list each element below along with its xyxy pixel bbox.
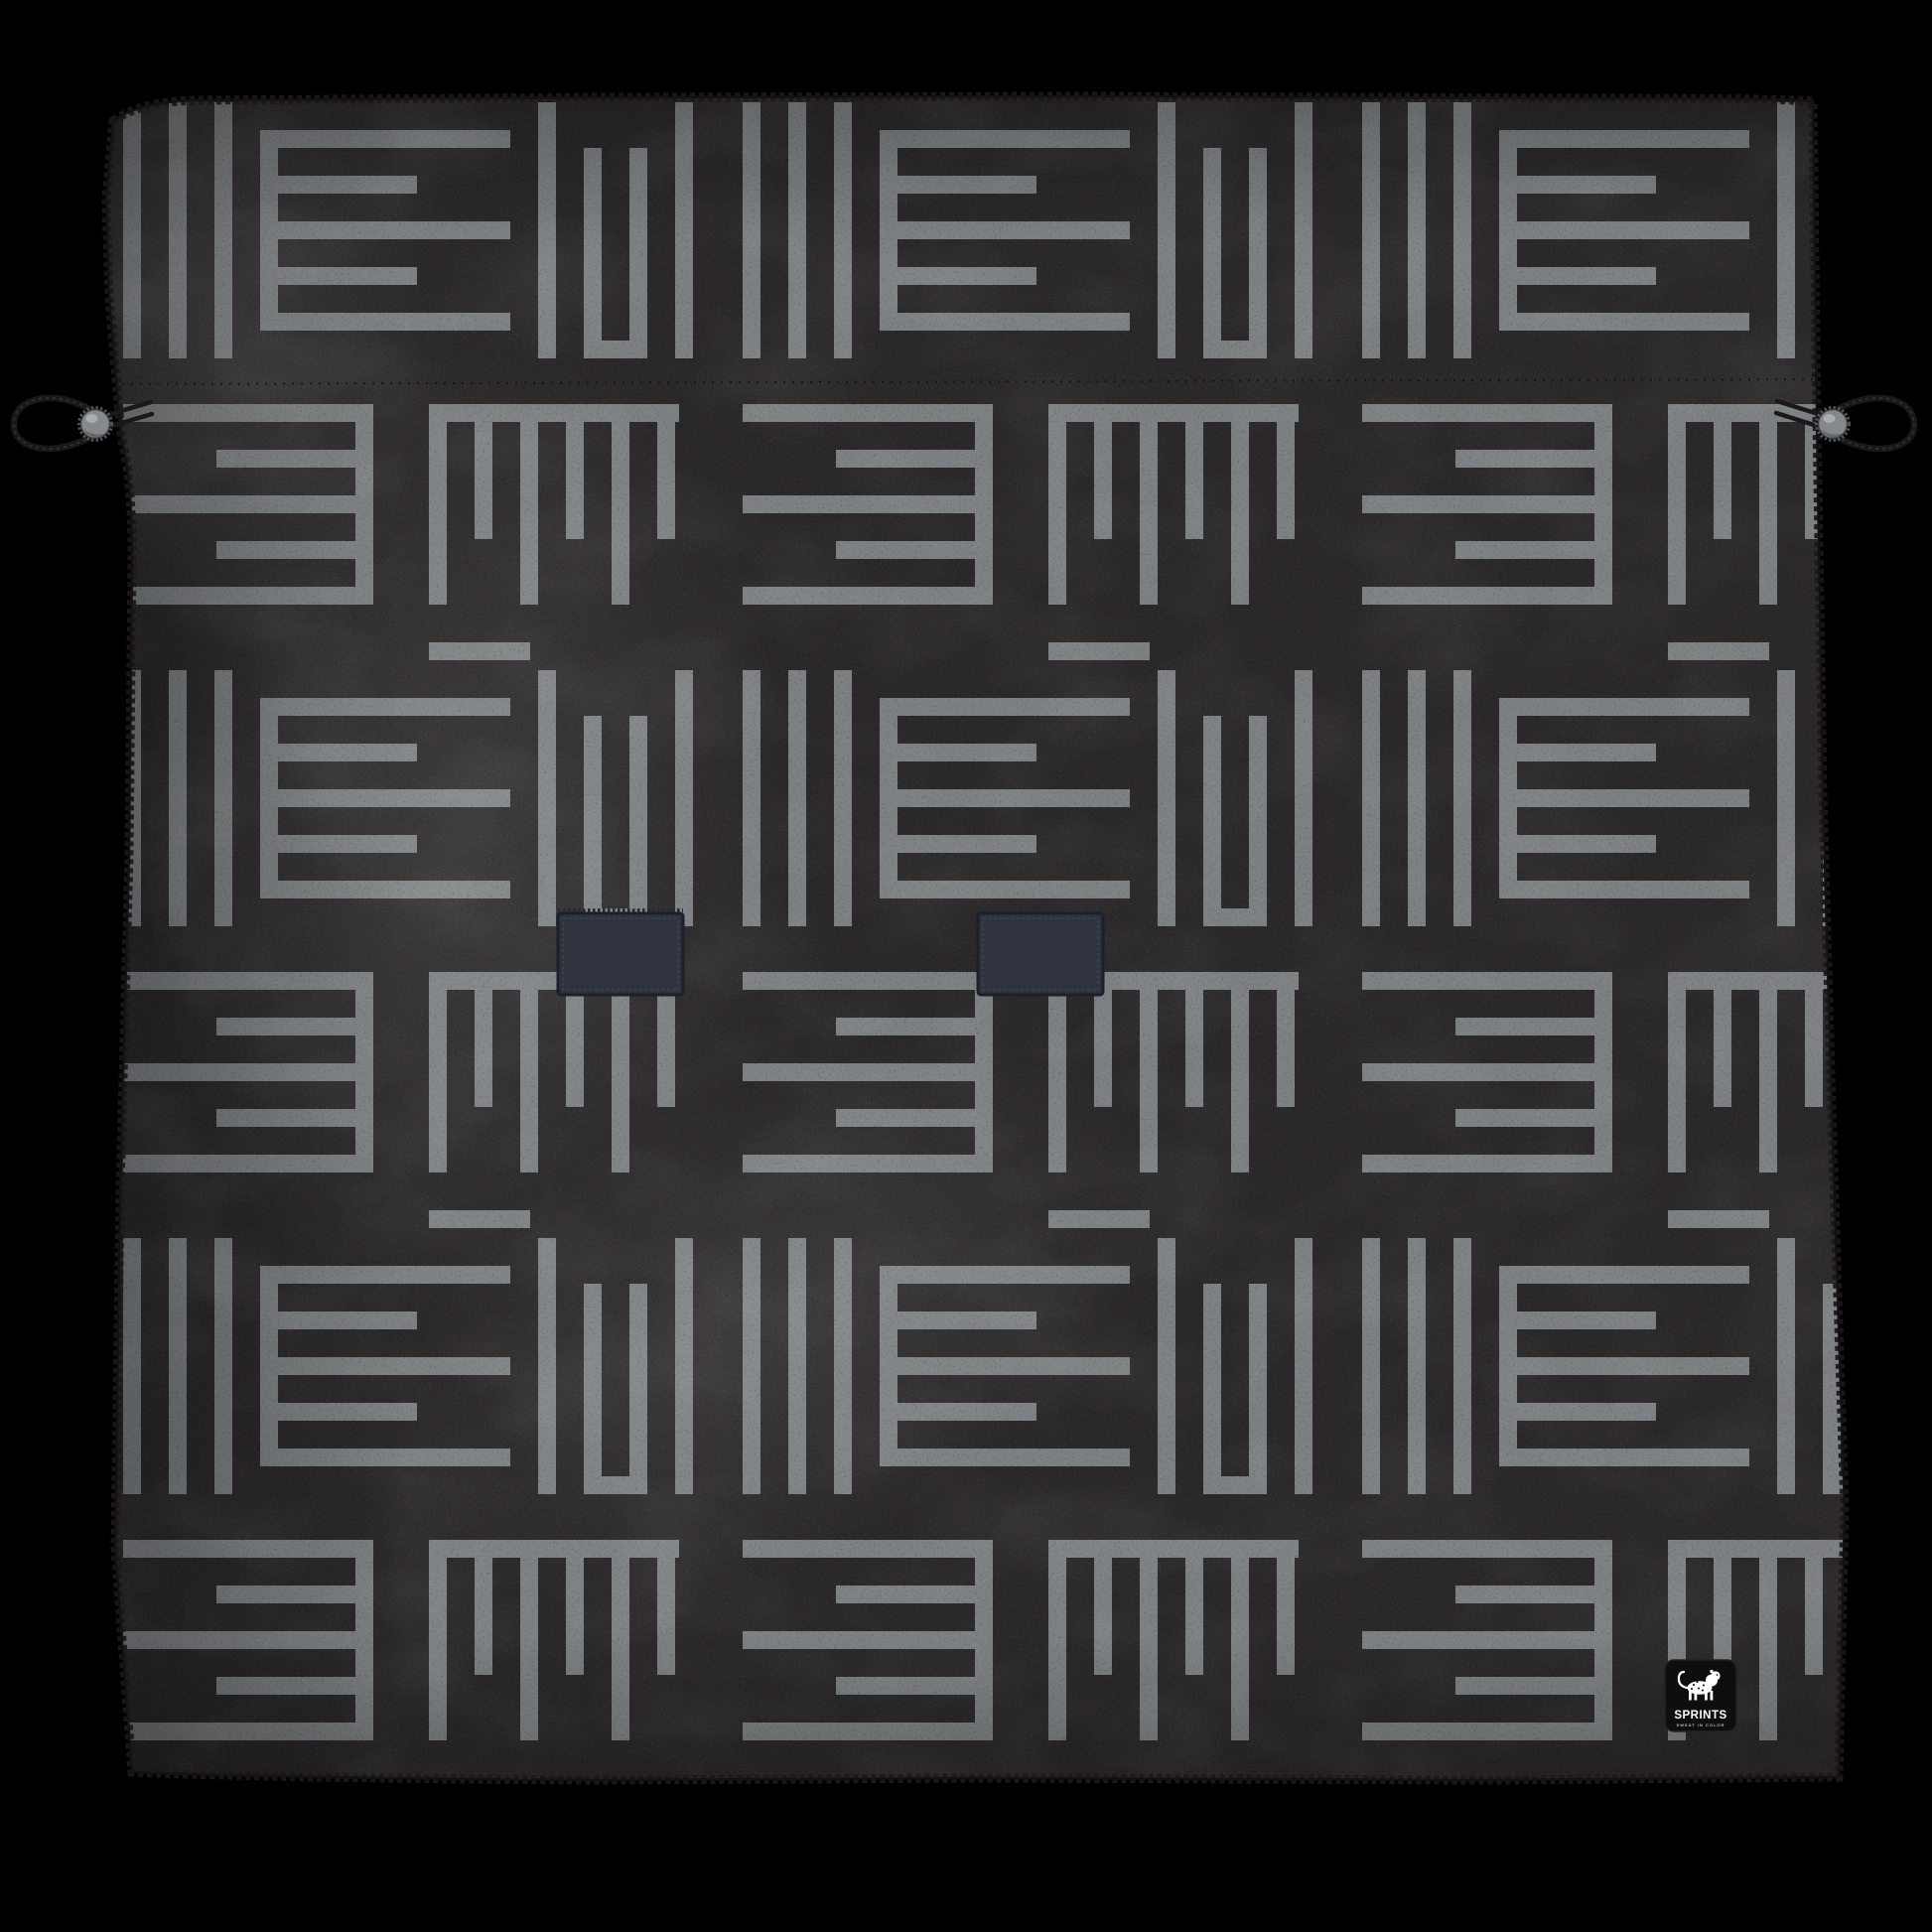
product-photo-canvas: SPRINTS SWEAT IN COLOR — [0, 0, 1932, 1932]
stitched-pocket-left — [558, 910, 683, 995]
brand-tagline: SWEAT IN COLOR — [1676, 1723, 1725, 1727]
cord-lock-highlight — [1824, 414, 1836, 423]
pocket-panel — [978, 913, 1103, 995]
pocket-panel — [558, 913, 683, 995]
fabric-grain-light — [89, 94, 1857, 1792]
stitched-pocket-right — [978, 910, 1103, 995]
towel — [20, 10, 1866, 1797]
brand-name: SPRINTS — [1674, 1710, 1726, 1722]
towel-product-image: SPRINTS SWEAT IN COLOR — [0, 0, 1932, 1932]
logo-patch: SPRINTS SWEAT IN COLOR — [1665, 1660, 1736, 1731]
cord-lock-highlight — [86, 414, 98, 423]
